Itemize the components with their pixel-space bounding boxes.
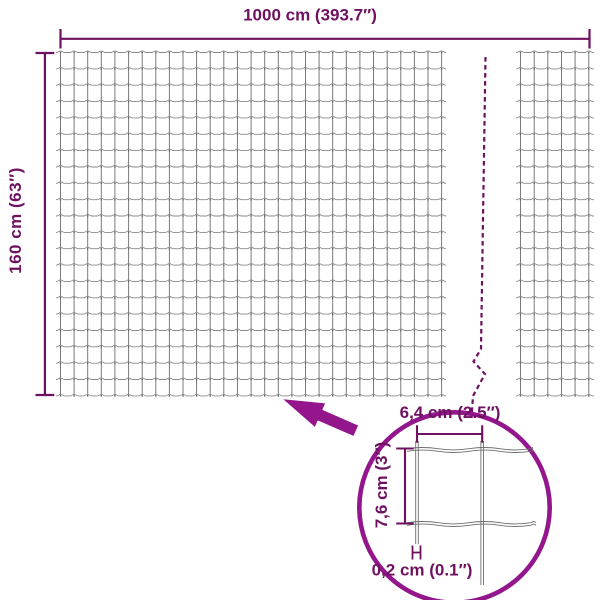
svg-text:7,6 cm (3″): 7,6 cm (3″) (372, 442, 391, 529)
svg-text:6,4 cm (2.5″): 6,4 cm (2.5″) (400, 403, 501, 422)
svg-text:160 cm (63″): 160 cm (63″) (6, 167, 25, 274)
svg-text:1000 cm (393.7″): 1000 cm (393.7″) (243, 6, 377, 25)
svg-text:0,2 cm (0.1″): 0,2 cm (0.1″) (372, 561, 473, 580)
